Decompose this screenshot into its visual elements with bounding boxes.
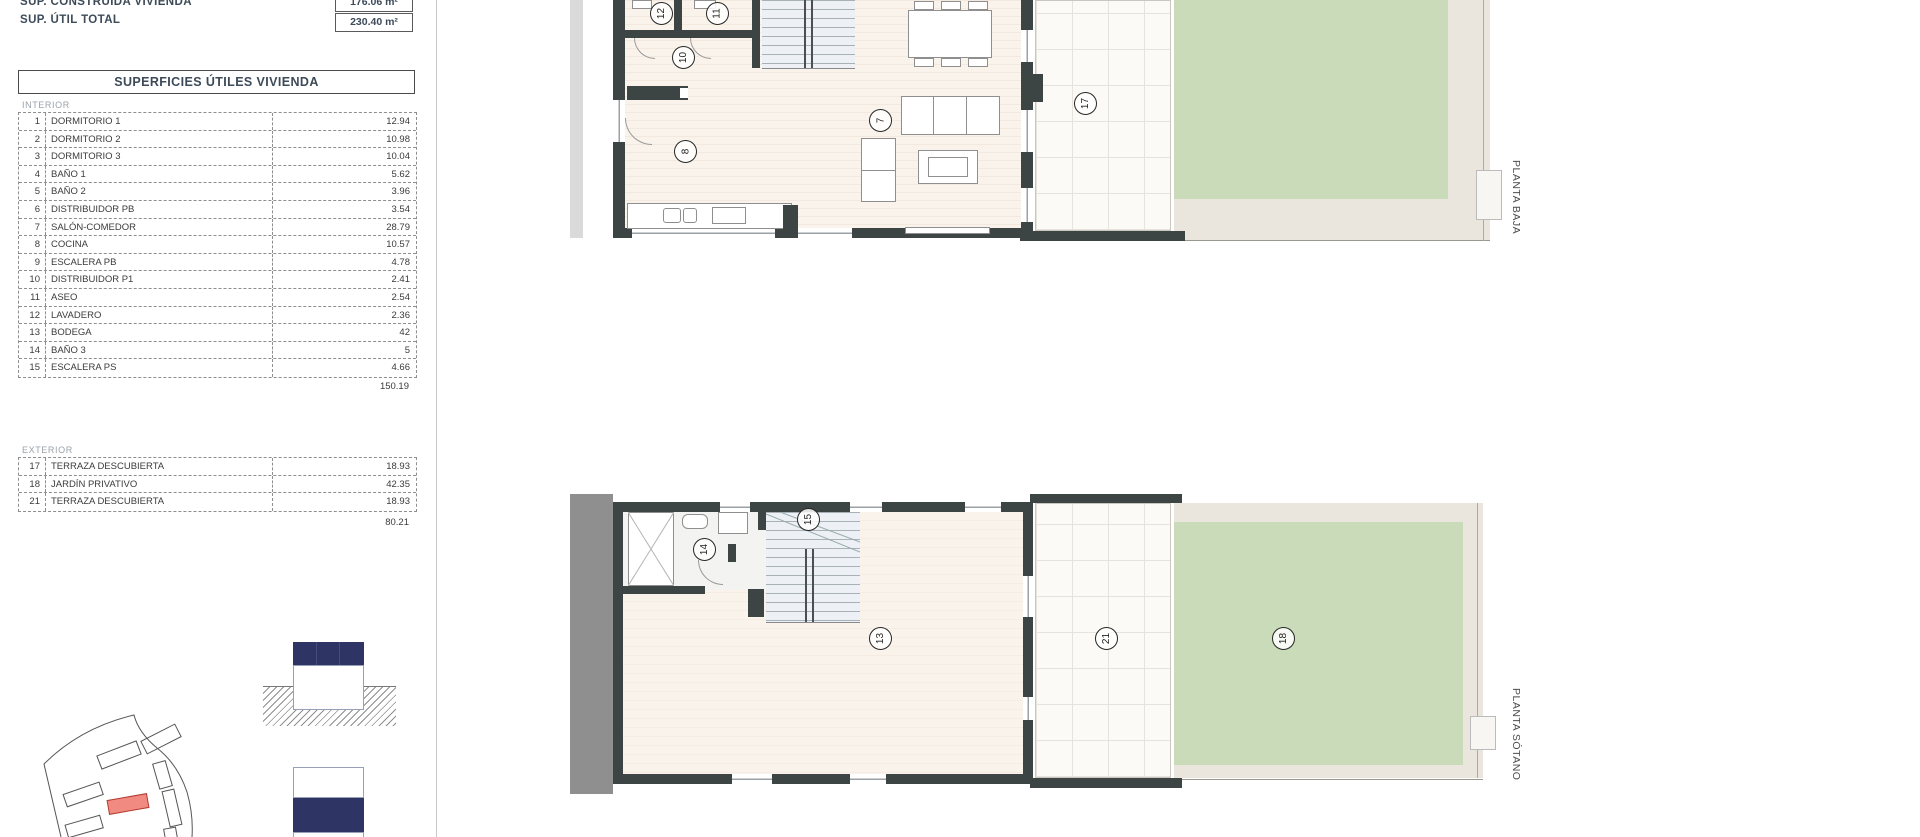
plot-outline bbox=[65, 815, 103, 837]
row-value: 3.54 bbox=[273, 201, 416, 218]
row-value: 10.98 bbox=[273, 131, 416, 148]
row-label: ESCALERA PB bbox=[46, 254, 273, 271]
room-marker-8: 8 bbox=[674, 140, 697, 163]
room-marker-7: 7 bbox=[869, 109, 892, 132]
row-value: 42 bbox=[273, 324, 416, 341]
row-value: 10.57 bbox=[273, 236, 416, 253]
row-label: DISTRIBUIDOR P1 bbox=[46, 271, 273, 288]
table-row: 5 BAÑO 2 3.96 bbox=[19, 183, 416, 201]
chair bbox=[941, 1, 961, 10]
window bbox=[850, 774, 886, 784]
pillar bbox=[783, 205, 798, 238]
wall-stub bbox=[748, 589, 764, 617]
gate bbox=[1476, 170, 1502, 220]
table-row: 17 TERRAZA DESCUBIERTA 18.93 bbox=[19, 458, 416, 476]
row-number: 17 bbox=[19, 458, 46, 475]
partition-wall bbox=[674, 0, 682, 38]
table-row: 18 JARDÍN PRIVATIVO 42.35 bbox=[19, 476, 416, 494]
row-label: DORMITORIO 1 bbox=[46, 113, 273, 130]
section-key-ground-floor-block bbox=[293, 767, 364, 798]
wall-stub bbox=[1033, 74, 1043, 102]
table-row: 4 BAÑO 1 5.62 bbox=[19, 166, 416, 184]
row-number: 2 bbox=[19, 131, 46, 148]
room-marker-label: 13 bbox=[875, 633, 886, 644]
terrace bbox=[1035, 0, 1171, 231]
plot-outline bbox=[153, 761, 173, 790]
row-value: 12.94 bbox=[273, 113, 416, 130]
room-marker-11: 11 bbox=[706, 2, 729, 25]
room-marker-label: 15 bbox=[803, 514, 814, 525]
planta-sotano-label: PLANTA SÓTANO bbox=[1510, 688, 1522, 780]
table-row: 3 DORMITORIO 3 10.04 bbox=[19, 148, 416, 166]
window bbox=[965, 502, 1001, 512]
row-value: 28.79 bbox=[273, 219, 416, 236]
row-number: 4 bbox=[19, 166, 46, 183]
row-label: BODEGA bbox=[46, 324, 273, 341]
plot-outline bbox=[97, 741, 141, 769]
room-marker-label: 10 bbox=[678, 52, 689, 63]
room-marker-13: 13 bbox=[869, 627, 892, 650]
planta-sotano-plan: 14 15 13 21 18 bbox=[570, 494, 1520, 794]
site-plan-sketch bbox=[38, 702, 210, 837]
row-value: 3.96 bbox=[273, 183, 416, 200]
row-value: 4.66 bbox=[273, 359, 416, 377]
useful-total-value: 230.40 m² bbox=[335, 13, 413, 32]
wall bbox=[1020, 231, 1185, 241]
panel-divider bbox=[436, 0, 437, 837]
row-label: COCINA bbox=[46, 236, 273, 253]
staircase bbox=[762, 0, 855, 69]
window bbox=[798, 228, 852, 238]
partition-wall bbox=[758, 502, 766, 530]
table-row: 15 ESCALERA PS 4.66 bbox=[19, 359, 416, 377]
closet bbox=[627, 86, 688, 100]
sink bbox=[683, 208, 697, 223]
row-number: 14 bbox=[19, 342, 46, 359]
table-row: 11 ASEO 2.54 bbox=[19, 289, 416, 307]
interior-section-label: INTERIOR bbox=[22, 100, 70, 110]
interior-surface-table: 1 DORMITORIO 1 12.94 2 DORMITORIO 2 10.9… bbox=[18, 112, 417, 378]
row-value: 2.54 bbox=[273, 289, 416, 306]
gray-strip bbox=[570, 494, 613, 794]
partition-wall bbox=[752, 0, 760, 68]
garden bbox=[1174, 522, 1463, 765]
table-row: 1 DORMITORIO 1 12.94 bbox=[19, 113, 416, 131]
row-value: 5 bbox=[273, 342, 416, 359]
row-number: 8 bbox=[19, 236, 46, 253]
sofa-seam bbox=[933, 96, 934, 135]
chair bbox=[968, 1, 988, 10]
table-row: 2 DORMITORIO 2 10.98 bbox=[19, 131, 416, 149]
section-key-sub-block bbox=[293, 832, 364, 837]
row-label: BAÑO 3 bbox=[46, 342, 273, 359]
chair bbox=[941, 58, 961, 67]
plot-outline bbox=[63, 782, 103, 807]
table-row: 10 DISTRIBUIDOR P1 2.41 bbox=[19, 271, 416, 289]
section-key-basement-block bbox=[293, 798, 364, 832]
row-number: 7 bbox=[19, 219, 46, 236]
room-marker-17: 17 bbox=[1074, 92, 1097, 115]
table-row: 6 DISTRIBUIDOR PB 3.54 bbox=[19, 201, 416, 219]
chair bbox=[914, 58, 934, 67]
row-number: 10 bbox=[19, 271, 46, 288]
wall bbox=[1030, 778, 1182, 788]
row-label: ASEO bbox=[46, 289, 273, 306]
tv-bench bbox=[905, 227, 990, 234]
stair-rail bbox=[805, 549, 807, 622]
row-label: SALÓN-COMEDOR bbox=[46, 219, 273, 236]
sofa-seam bbox=[966, 96, 967, 135]
wall bbox=[1023, 502, 1033, 784]
row-label: DISTRIBUIDOR PB bbox=[46, 201, 273, 218]
row-label: ESCALERA PS bbox=[46, 359, 273, 377]
row-label: DORMITORIO 2 bbox=[46, 131, 273, 148]
row-value: 2.36 bbox=[273, 307, 416, 324]
wall bbox=[613, 502, 623, 784]
stair-rail bbox=[812, 549, 814, 622]
window bbox=[1023, 697, 1033, 720]
washbasin bbox=[718, 512, 748, 534]
exterior-total: 80.21 bbox=[18, 517, 409, 528]
room-marker-label: 7 bbox=[875, 118, 886, 124]
row-value: 2.41 bbox=[273, 271, 416, 288]
window bbox=[732, 774, 772, 784]
plan-sheet: SUP. CONSTRUIDA VIVIENDA 176.06 m² SUP. … bbox=[0, 0, 1920, 837]
row-number: 12 bbox=[19, 307, 46, 324]
room-marker-14: 14 bbox=[693, 538, 716, 561]
window bbox=[1023, 576, 1033, 617]
fence-line bbox=[1171, 503, 1174, 778]
sink bbox=[663, 208, 681, 223]
row-number: 3 bbox=[19, 148, 46, 165]
room-marker-label: 8 bbox=[680, 149, 691, 155]
row-number: 9 bbox=[19, 254, 46, 271]
row-number: 5 bbox=[19, 183, 46, 200]
planta-baja-label: PLANTA BAJA bbox=[1510, 160, 1522, 234]
row-number: 6 bbox=[19, 201, 46, 218]
row-number: 13 bbox=[19, 324, 46, 341]
window bbox=[720, 502, 750, 512]
window bbox=[632, 228, 775, 238]
row-value: 4.78 bbox=[273, 254, 416, 271]
room-marker-label: 21 bbox=[1101, 633, 1112, 644]
sofa bbox=[901, 96, 1000, 135]
room-marker-21: 21 bbox=[1095, 627, 1118, 650]
plot-outline bbox=[162, 789, 182, 827]
section-key-ground-floor-block bbox=[293, 642, 364, 665]
room-marker-label: 12 bbox=[656, 8, 667, 19]
stair-rail bbox=[804, 0, 806, 68]
row-value: 10.04 bbox=[273, 148, 416, 165]
built-area-label: SUP. CONSTRUIDA VIVIENDA bbox=[20, 0, 192, 8]
garden bbox=[1174, 0, 1448, 199]
room-marker-18: 18 bbox=[1272, 627, 1295, 650]
kitchen-counter bbox=[627, 203, 792, 229]
surfaces-table-title: SUPERFICIES ÚTILES VIVIENDA bbox=[18, 70, 415, 94]
table-row: 12 LAVADERO 2.36 bbox=[19, 307, 416, 325]
table-row: 21 TERRAZA DESCUBIERTA 18.93 bbox=[19, 493, 416, 511]
fixture bbox=[632, 0, 652, 9]
section-key-basement-block bbox=[293, 665, 364, 710]
row-label: TERRAZA DESCUBIERTA bbox=[46, 458, 273, 475]
wall-stub bbox=[728, 544, 736, 562]
useful-total-label: SUP. ÚTIL TOTAL bbox=[20, 14, 120, 26]
row-value: 42.35 bbox=[273, 476, 416, 493]
row-label: TERRAZA DESCUBIERTA bbox=[46, 493, 273, 511]
window bbox=[850, 502, 882, 512]
stair-rail bbox=[811, 0, 813, 68]
table-row: 8 COCINA 10.57 bbox=[19, 236, 416, 254]
coffee-table-inner bbox=[928, 157, 968, 177]
row-number: 21 bbox=[19, 493, 46, 511]
row-label: BAÑO 2 bbox=[46, 183, 273, 200]
highlighted-plot bbox=[107, 794, 149, 815]
room-marker-15: 15 bbox=[797, 508, 820, 531]
wall bbox=[1030, 494, 1182, 503]
table-row: 9 ESCALERA PB 4.78 bbox=[19, 254, 416, 272]
gate bbox=[1470, 716, 1496, 750]
room-marker-12: 12 bbox=[650, 2, 673, 25]
cooktop bbox=[712, 207, 746, 224]
closet-gap bbox=[680, 88, 688, 98]
row-label: DORMITORIO 3 bbox=[46, 148, 273, 165]
window bbox=[1021, 110, 1033, 152]
window bbox=[613, 100, 625, 142]
armchair-seam bbox=[861, 170, 896, 171]
fence-line bbox=[1171, 0, 1174, 231]
planta-baja-plan: 12 11 10 8 7 17 bbox=[570, 0, 1520, 246]
room-marker-label: 17 bbox=[1080, 98, 1091, 109]
built-area-value: 176.06 m² bbox=[335, 0, 413, 12]
table-row: 14 BAÑO 3 5 bbox=[19, 342, 416, 360]
interior-total: 150.19 bbox=[18, 381, 409, 392]
chair bbox=[914, 1, 934, 10]
room-marker-label: 18 bbox=[1278, 633, 1289, 644]
row-value: 5.62 bbox=[273, 166, 416, 183]
partition-wall bbox=[623, 586, 705, 594]
wall bbox=[613, 774, 1033, 784]
dining-table bbox=[908, 10, 992, 58]
shower-glass bbox=[628, 512, 674, 586]
plot-edge-line bbox=[1182, 779, 1483, 780]
row-number: 18 bbox=[19, 476, 46, 493]
partition-wall bbox=[625, 30, 760, 38]
row-label: JARDÍN PRIVATIVO bbox=[46, 476, 273, 493]
exterior-section-label: EXTERIOR bbox=[22, 445, 73, 455]
exterior-surface-table: 17 TERRAZA DESCUBIERTA 18.93 18 JARDÍN P… bbox=[18, 457, 417, 512]
room-marker-label: 14 bbox=[699, 544, 710, 555]
row-value: 18.93 bbox=[273, 458, 416, 475]
toilet bbox=[682, 514, 708, 529]
sidewalk-strip bbox=[570, 0, 583, 238]
table-row: 7 SALÓN-COMEDOR 28.79 bbox=[19, 219, 416, 237]
row-label: LAVADERO bbox=[46, 307, 273, 324]
row-number: 11 bbox=[19, 289, 46, 306]
room-marker-label: 11 bbox=[712, 8, 723, 18]
plot-outline bbox=[164, 827, 181, 837]
chair bbox=[968, 58, 988, 67]
window bbox=[1021, 30, 1033, 62]
room-marker-10: 10 bbox=[672, 46, 695, 69]
row-label: BAÑO 1 bbox=[46, 166, 273, 183]
row-number: 15 bbox=[19, 359, 46, 377]
row-number: 1 bbox=[19, 113, 46, 130]
row-value: 18.93 bbox=[273, 493, 416, 511]
table-row: 13 BODEGA 42 bbox=[19, 324, 416, 342]
window bbox=[1021, 188, 1033, 222]
